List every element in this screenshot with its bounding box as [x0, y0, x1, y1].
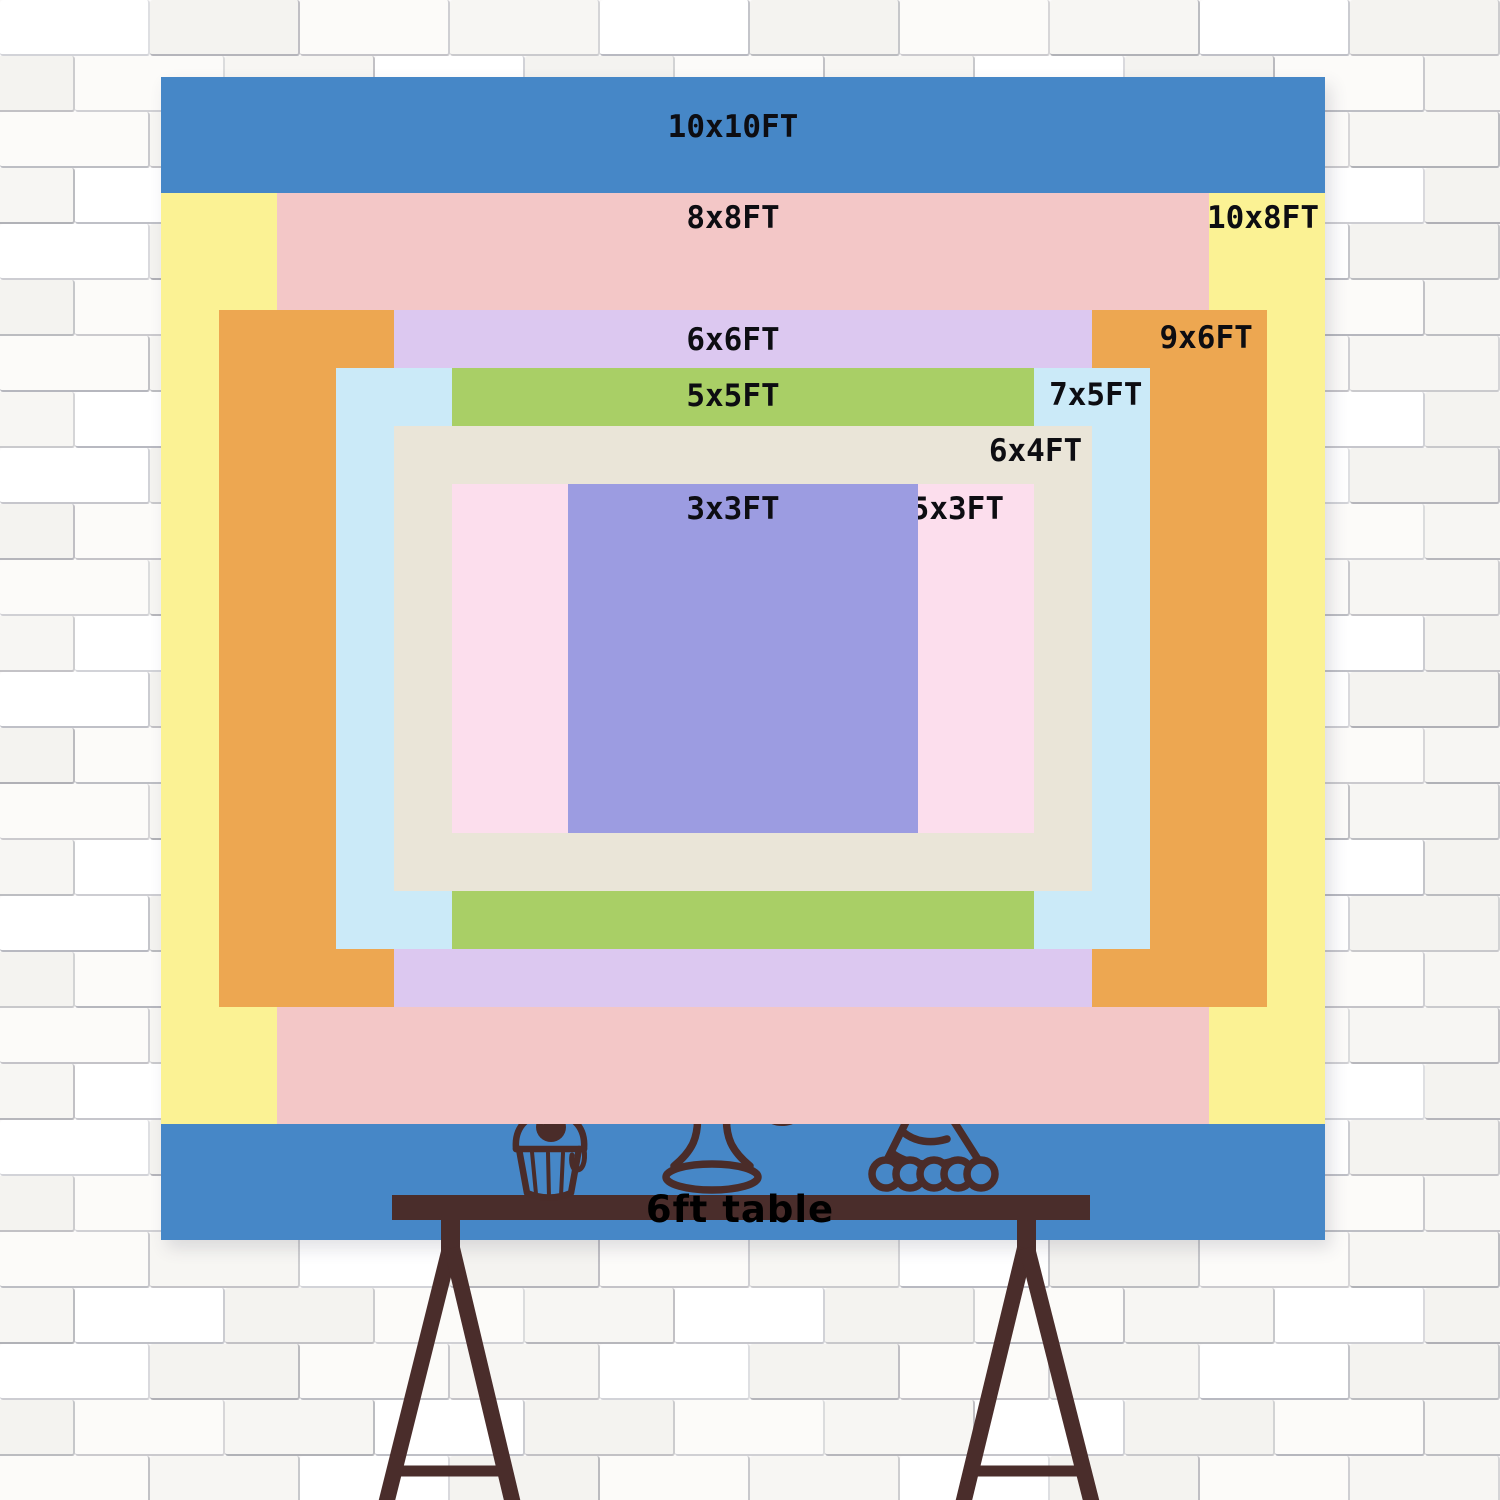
size-label-6x6: 6x6FT: [686, 323, 779, 357]
backdrop-size-chart-poster: 10x10FT10x8FT8x8FT9x6FT6x6FT7x5FT5x5FT6x…: [0, 0, 1500, 1500]
size-label-7x5: 7x5FT: [1049, 378, 1142, 412]
table-legs: [386, 1248, 1092, 1500]
size-label-10x8: 10x8FT: [1207, 201, 1319, 235]
size-layer-3x3: 3x3FT: [568, 484, 917, 833]
size-label-8x8: 8x8FT: [686, 201, 779, 235]
size-label-5x3: 5x3FT: [911, 492, 1004, 526]
backdrop-size-chart: 10x10FT10x8FT8x8FT9x6FT6x6FT7x5FT5x5FT6x…: [161, 77, 1325, 1240]
size-label-5x5: 5x5FT: [686, 379, 779, 413]
size-label-3x3: 3x3FT: [686, 492, 779, 526]
table-size-label: 6ft table: [392, 1188, 1088, 1231]
size-label-6x4: 6x4FT: [989, 434, 1082, 468]
size-label-9x6: 9x6FT: [1159, 321, 1252, 355]
